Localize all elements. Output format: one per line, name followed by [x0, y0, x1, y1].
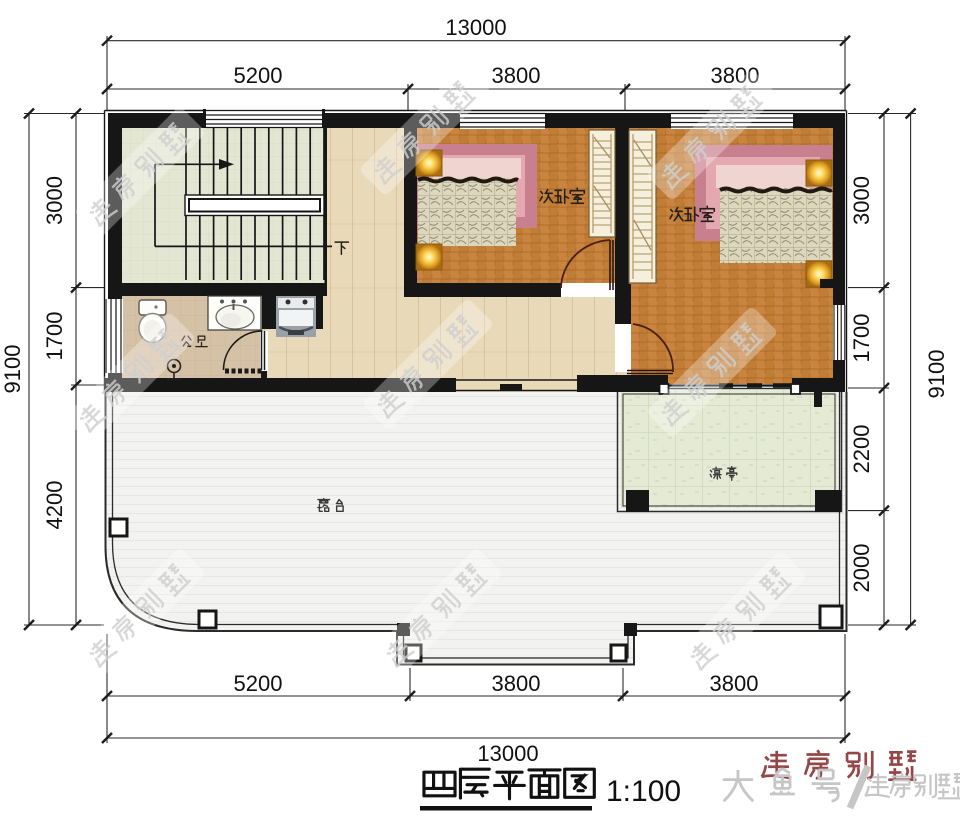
svg-text:3800: 3800: [492, 671, 541, 696]
svg-text:4200: 4200: [42, 481, 67, 530]
svg-text:1700: 1700: [849, 314, 874, 363]
svg-text:5200: 5200: [234, 63, 283, 88]
svg-text:2000: 2000: [849, 544, 874, 593]
svg-text:5200: 5200: [234, 671, 283, 696]
svg-text:1700: 1700: [42, 312, 67, 361]
svg-text:2200: 2200: [849, 425, 874, 474]
svg-text:3800: 3800: [710, 671, 759, 696]
svg-text:3800: 3800: [492, 63, 541, 88]
svg-text:13000: 13000: [477, 741, 538, 766]
svg-text:9100: 9100: [924, 350, 949, 399]
svg-text:13000: 13000: [445, 15, 506, 40]
svg-text:3000: 3000: [849, 176, 874, 225]
svg-text:9100: 9100: [0, 345, 25, 394]
svg-text:3000: 3000: [42, 176, 67, 225]
svg-text:1:100: 1:100: [606, 775, 681, 808]
